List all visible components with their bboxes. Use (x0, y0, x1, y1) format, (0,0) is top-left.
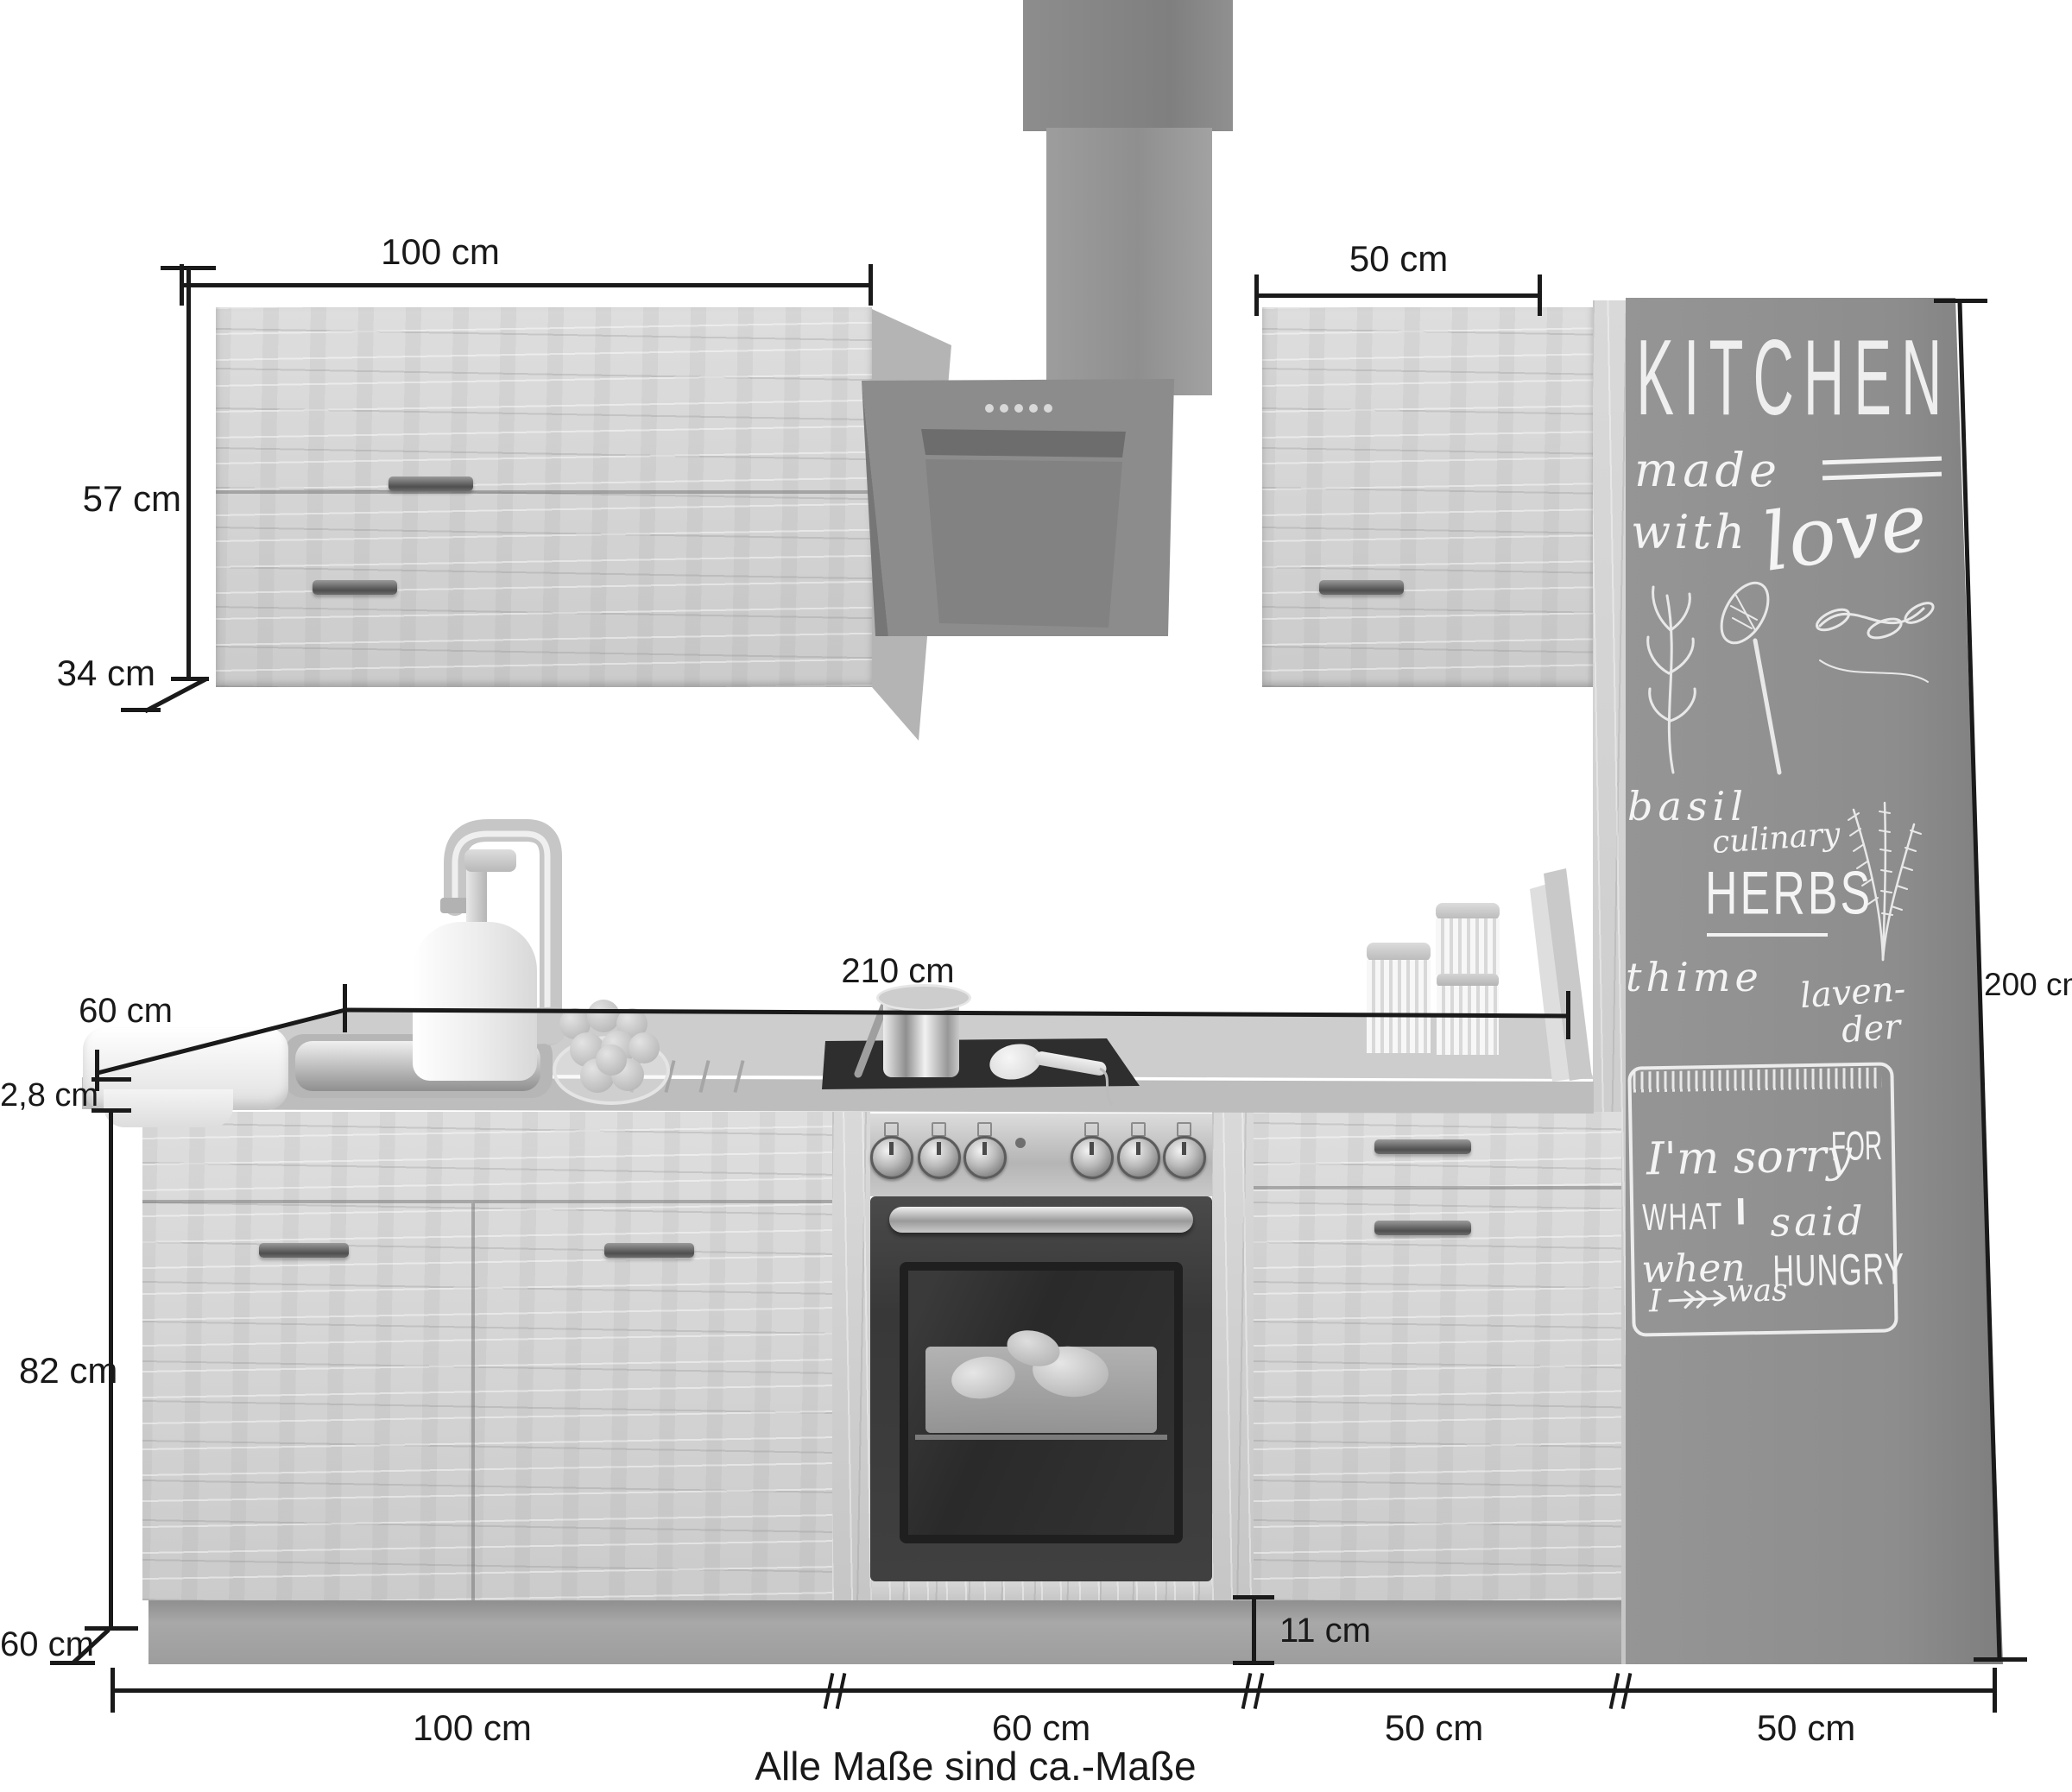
dim-line-tall-height (1960, 302, 1999, 1659)
dim-diagonal-base-depth (73, 1630, 109, 1663)
dimension-diagonals (0, 0, 2072, 1792)
kitchen-dimension-diagram: KITCHEN made with love basil (0, 0, 2072, 1792)
dim-line-counter-run-slanted (345, 1010, 1569, 1016)
caption-note: Alle Maße sind ca.-Maße (458, 1745, 1494, 1787)
dim-diagonal-counter-depth (98, 1010, 345, 1073)
dim-diagonal-wall-depth (145, 678, 207, 711)
